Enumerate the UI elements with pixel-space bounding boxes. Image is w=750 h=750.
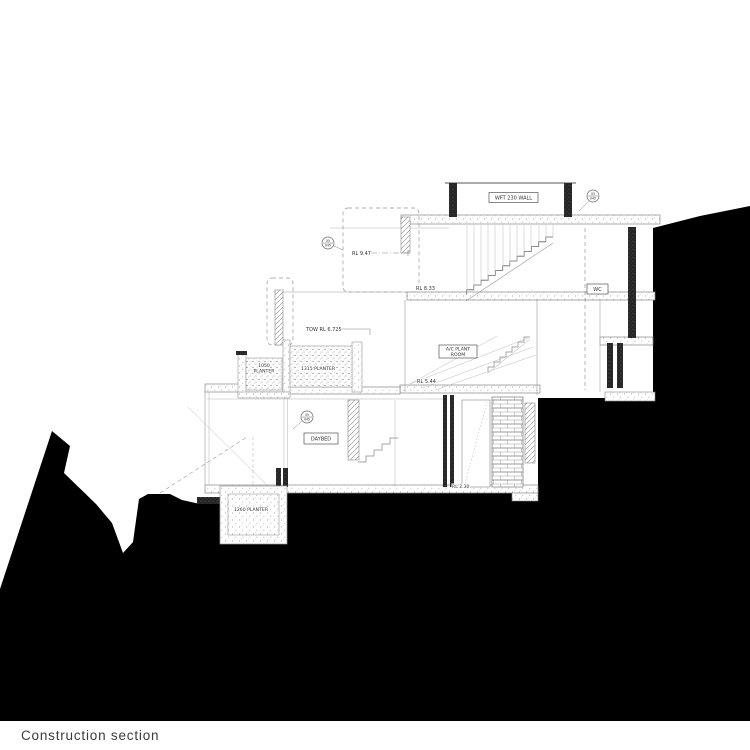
level-rl-833: RL 8.33 bbox=[416, 286, 435, 292]
door-panel bbox=[462, 400, 490, 487]
detail-marker-1: 05 045 bbox=[322, 237, 343, 250]
marker-detail-number: 05 bbox=[326, 239, 330, 243]
stair-balustrade bbox=[467, 225, 553, 295]
level-rl-544: RL 5.44 bbox=[417, 379, 436, 385]
daybed-steps bbox=[358, 438, 398, 462]
section-drawing: 05 045 05 045 05 045 WFT 230 WALL DAYBED… bbox=[0, 0, 750, 750]
wft-wall-label: WFT 230 WALL bbox=[495, 196, 532, 202]
roof-slab bbox=[401, 215, 660, 224]
planter-1315-label: 1315 PLANTER bbox=[301, 366, 336, 372]
marker-sheet-number: 045 bbox=[590, 197, 596, 201]
brick-wall bbox=[492, 397, 523, 487]
daybed-label: DAYBED bbox=[311, 437, 331, 443]
drawing-caption: Construction section bbox=[21, 728, 159, 743]
level-tow-6725: TOW RL 6.725 bbox=[305, 327, 342, 333]
retaining-cap bbox=[197, 497, 220, 504]
level-leaders bbox=[337, 250, 410, 335]
detail-marker-2: 05 045 bbox=[579, 190, 599, 211]
slab-rl544 bbox=[400, 385, 540, 393]
planter-1260-label: 1260 PLANTER bbox=[234, 507, 269, 513]
ac-plant-room-label-line2: ROOM bbox=[451, 352, 465, 358]
terrain-silhouette bbox=[0, 206, 750, 721]
planter-base-slab bbox=[283, 387, 400, 394]
site-lines bbox=[160, 407, 268, 493]
mid-slab-rl833 bbox=[407, 292, 655, 300]
ac-plant-room-label-line1: A/C PLANT bbox=[446, 347, 470, 353]
right-slab-strip bbox=[605, 392, 655, 401]
marker-detail-number: 05 bbox=[591, 192, 595, 196]
marker-sheet-number: 045 bbox=[304, 418, 310, 422]
upper-stair bbox=[466, 225, 553, 301]
planter-1315 bbox=[283, 340, 362, 392]
wc-label: WC bbox=[593, 287, 602, 293]
construction-section-page: 05 045 05 045 05 045 WFT 230 WALL DAYBED… bbox=[0, 0, 750, 750]
level-rl-947: RL 9.47 bbox=[352, 251, 371, 257]
planter-1260 bbox=[220, 486, 287, 544]
marker-detail-number: 05 bbox=[305, 413, 309, 417]
planter-1050-label-line1: 1050 bbox=[258, 363, 270, 369]
marker-sheet-number: 045 bbox=[325, 244, 331, 248]
detail-marker-3: 05 045 bbox=[293, 411, 313, 429]
planter-1050-label-line2: PLANTER bbox=[254, 369, 276, 375]
mid-stair bbox=[487, 337, 530, 374]
level-rl-230: RL 2.30 bbox=[452, 484, 470, 490]
